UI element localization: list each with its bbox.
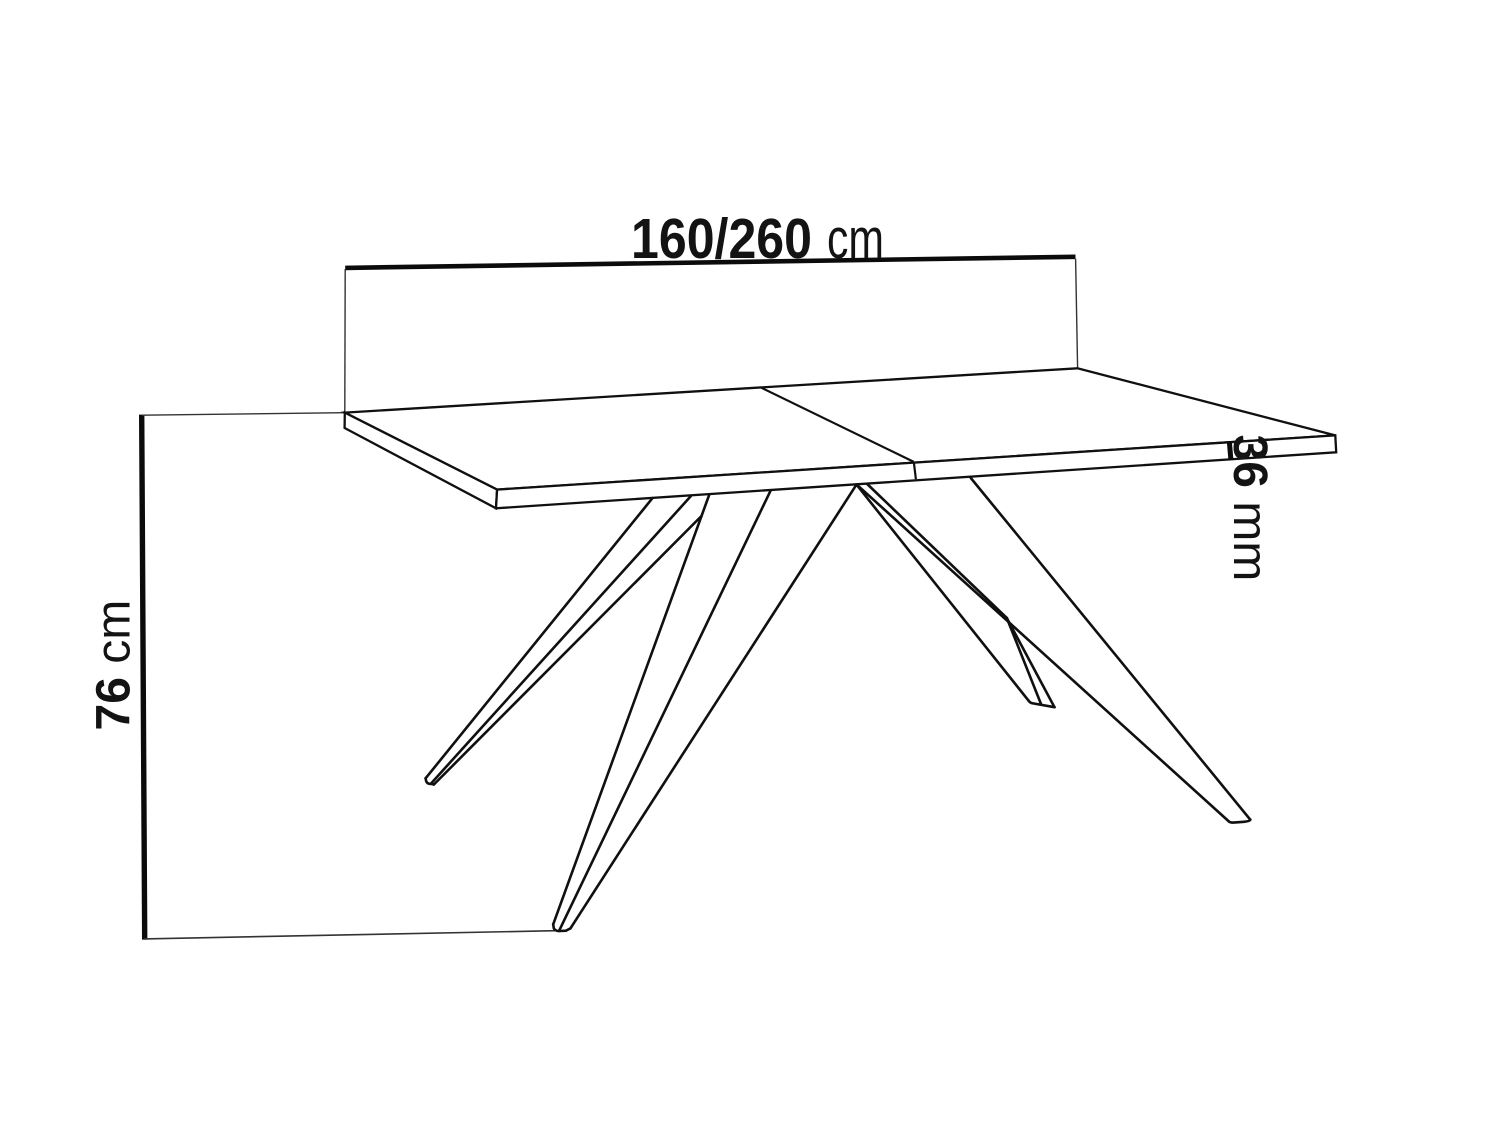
svg-text:76 cm: 76 cm xyxy=(88,600,141,731)
svg-text:36 mm: 36 mm xyxy=(1223,435,1276,582)
svg-text:cm: cm xyxy=(827,207,884,271)
svg-text:160/260: 160/260 xyxy=(631,207,812,271)
